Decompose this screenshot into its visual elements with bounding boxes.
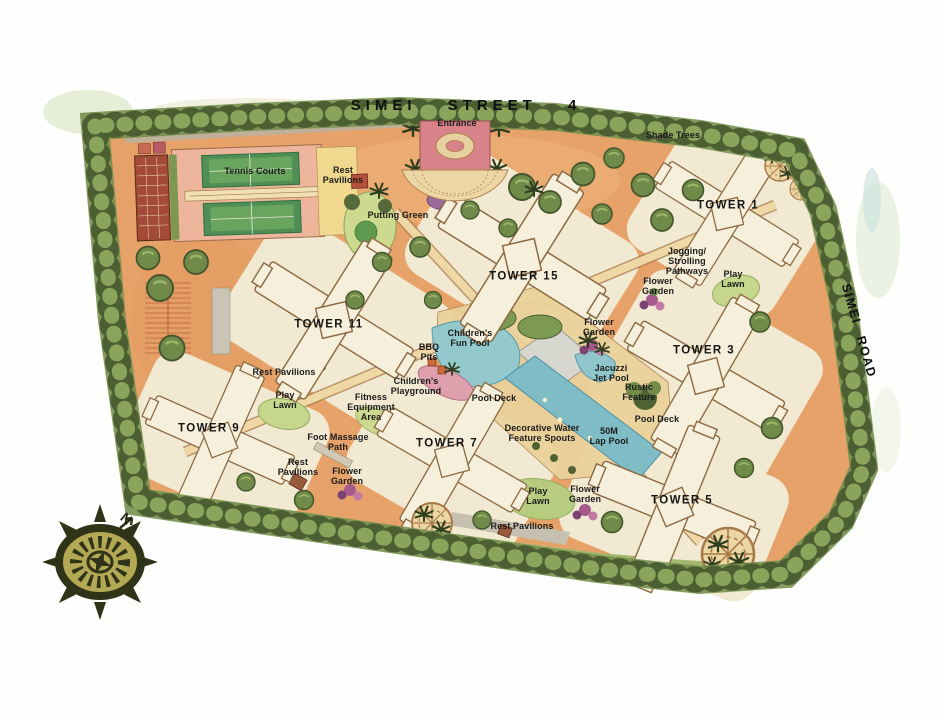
label-childrens-playground: Children's Playground bbox=[391, 377, 442, 397]
label-fitness-equipment-area: Fitness Equipment Area bbox=[347, 393, 394, 423]
label-foot-massage-path: Foot Massage Path bbox=[307, 433, 368, 453]
label-entrance: Entrance bbox=[437, 119, 476, 129]
label-rest-pavilions-west: Rest Pavilions bbox=[253, 368, 316, 378]
label-jogging-strolling-pathways: Jogging/ Strolling Pathways bbox=[666, 247, 708, 277]
label-bbq-pits: BBQ Pits bbox=[419, 343, 439, 363]
label-flower-garden-southwest: Flower Garden bbox=[331, 467, 363, 487]
label-tower-9: TOWER 9 bbox=[178, 423, 240, 436]
carpark-building bbox=[135, 155, 171, 241]
label-rustic-feature: Rustic Feature bbox=[622, 383, 655, 403]
label-play-lawn-south: Play Lawn bbox=[526, 487, 549, 507]
label-flower-garden-east: Flower Garden bbox=[642, 277, 674, 297]
label-tower-5: TOWER 5 bbox=[651, 495, 713, 508]
label-tower-11: TOWER 11 bbox=[294, 319, 363, 332]
label-rest-pavilions-south: Rest Pavilions bbox=[491, 522, 554, 532]
label-shade-trees: Shade Trees bbox=[646, 131, 700, 141]
label-tower-3: TOWER 3 bbox=[673, 345, 735, 358]
label-putting-green: Putting Green bbox=[368, 211, 429, 221]
label-50m-lap-pool: 50M Lap Pool bbox=[590, 427, 629, 447]
label-tennis-courts: Tennis Courts bbox=[224, 167, 285, 177]
site-plan-page: SIMEI STREET 4 SIMEI ROAD N Entrance Sha… bbox=[0, 0, 943, 717]
label-decorative-water-feature-spouts: Decorative Water Feature Spouts bbox=[505, 424, 580, 444]
label-rest-pavilions-southwest: Rest Pavilions bbox=[278, 458, 318, 478]
label-childrens-fun-pool: Children's Fun Pool bbox=[448, 329, 493, 349]
label-play-lawn-west: Play Lawn bbox=[273, 391, 296, 411]
label-tower-1: TOWER 1 bbox=[697, 200, 759, 213]
label-pool-deck-west: Pool Deck bbox=[472, 394, 516, 404]
label-flower-garden-south: Flower Garden bbox=[569, 485, 601, 505]
label-flower-garden-center: Flower Garden bbox=[583, 318, 615, 338]
label-tower-7: TOWER 7 bbox=[416, 438, 478, 451]
label-jacuzzi-jet-pool: Jacuzzi Jet Pool bbox=[593, 364, 629, 384]
compass-rose bbox=[42, 504, 158, 620]
label-pool-deck-east: Pool Deck bbox=[635, 415, 679, 425]
label-rest-pavilions-north: Rest Pavilions bbox=[323, 166, 363, 186]
street-title: SIMEI STREET 4 bbox=[351, 98, 582, 115]
label-tower-15: TOWER 15 bbox=[489, 271, 559, 284]
label-play-lawn-east: Play Lawn bbox=[721, 270, 744, 290]
